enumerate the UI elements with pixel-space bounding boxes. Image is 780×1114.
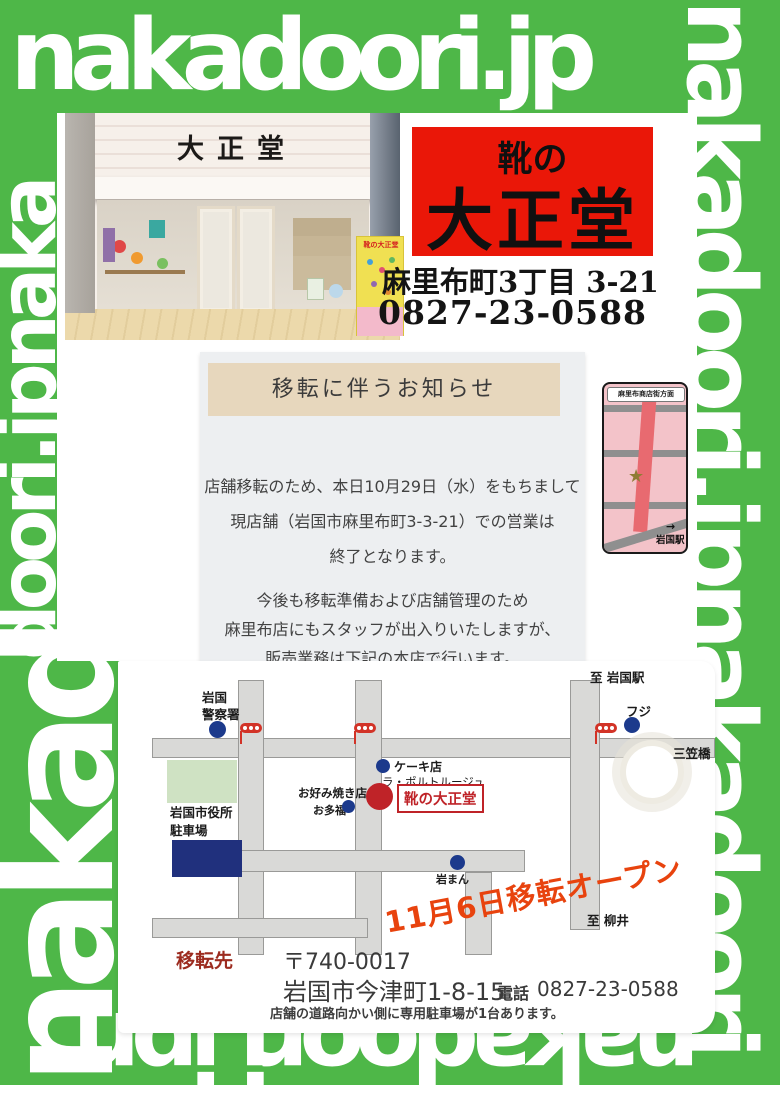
relocation-address: 岩国市今津町1-8-15 <box>283 972 505 1007</box>
fuji-dot <box>624 717 640 733</box>
notice-line: 麻里布店にもスタッフが出入りいたしますが、 <box>200 615 585 644</box>
notice-paragraph-2: 今後も移転準備および店舗管理のため 麻里布店にもスタッフが出入りいたしますが、 … <box>200 586 585 673</box>
map-label-mikasa-bridge: 三笠橋 <box>673 743 711 762</box>
mini-map: 麻里布商店街方面 ★ → 岩国駅 <box>602 382 688 554</box>
sign-store-name: 大正堂 <box>409 167 656 264</box>
map-building-block <box>172 840 242 877</box>
map-label-otafuku: お多福 <box>313 802 346 818</box>
police-dot <box>209 721 226 738</box>
shoe-store-label-box: 靴の大正堂 <box>397 784 484 813</box>
store-phone: 0827-23-0588 <box>378 293 647 332</box>
iwaman-dot <box>450 855 465 870</box>
traffic-light-icon <box>595 723 617 733</box>
relocation-parking-note: 店舗の道路向かい側に専用駐車場が1台あります。 <box>270 1003 564 1022</box>
store-location-star-icon: ★ <box>628 466 644 487</box>
relocation-phone-label: 電話 <box>497 980 529 1004</box>
relocation-label: 移転先 <box>176 946 233 973</box>
map-label-police: 岩国 警察署 <box>202 689 240 723</box>
standing-sign-title: 靴の大正堂 <box>360 240 402 250</box>
bottom-margin-strip <box>0 1085 780 1114</box>
notice-paragraph-1: 店舗移転のため、本日10月29日（水）をもちまして 現店舗（岩国市麻里布町3-3… <box>200 469 585 574</box>
entrance-door-right <box>237 206 275 314</box>
traffic-light-icon <box>354 723 376 733</box>
notice-line: 店舗移転のため、本日10月29日（水）をもちまして <box>200 469 585 504</box>
map-label-to-yanai: 至 柳井 <box>587 910 629 929</box>
tiled-pavement <box>65 309 400 340</box>
map-label-cake-shop: ケーキ店 <box>394 758 442 775</box>
map-road-horizontal-c <box>152 918 368 938</box>
otafuku-dot <box>342 800 355 813</box>
shop-awning <box>93 177 373 199</box>
storefront-photo: 大正堂 <box>65 113 400 340</box>
flyer-page: nakadoori.jp nakadoori.jpnakadoori doori… <box>0 0 780 1114</box>
relocation-notice-paper: 移転に伴うお知らせ 店舗移転のため、本日10月29日（水）をもちまして 現店舗（… <box>200 352 585 664</box>
shop-interior <box>97 200 369 316</box>
notice-title-banner: 移転に伴うお知らせ <box>208 363 560 416</box>
map-road-horizontal-b <box>240 850 525 872</box>
notice-line: 今後も移転準備および店舗管理のため <box>200 586 585 615</box>
mini-map-heading: 麻里布商店街方面 <box>607 387 685 402</box>
relocation-phone: 0827-23-0588 <box>537 977 679 1001</box>
map-label-okonomiyaki: お好み焼き店 <box>298 785 367 801</box>
mini-map-station-label: 岩国駅 <box>656 532 685 546</box>
display-shelf <box>105 270 185 274</box>
display-item-blue <box>329 284 343 298</box>
door-glass <box>203 212 229 308</box>
map-road-vertical-2 <box>355 680 382 955</box>
city-hall-parking-area <box>167 760 237 803</box>
display-item-white-bag <box>307 278 324 300</box>
traffic-light-icon <box>240 723 262 733</box>
sign-deco-dot <box>367 259 373 265</box>
notice-line: 終了となります。 <box>200 539 585 574</box>
display-item-orange <box>131 252 143 264</box>
display-item-teal-bag <box>149 220 165 238</box>
map-label-cityhall-parking: 岩国市役所 駐車場 <box>170 804 233 840</box>
sign-deco-dot <box>371 281 377 287</box>
mini-map-main-road <box>633 392 657 533</box>
map-label-to-station: 至 岩国駅 <box>590 667 644 686</box>
brand-wordmark-left-vertical-upper: doori.jpnaka <box>0 60 58 660</box>
display-item-purple <box>103 228 115 262</box>
facade-sign-text: 大正堂 <box>157 127 317 166</box>
left-pillar <box>65 113 95 313</box>
map-road-vertical-1 <box>238 680 264 955</box>
entrance-door-left <box>197 206 235 314</box>
door-glass <box>243 212 269 308</box>
display-item-green <box>157 258 168 269</box>
cake-shop-dot <box>376 759 390 773</box>
brand-wordmark-top: nakadoori.jp <box>10 0 690 115</box>
shoe-store-dot <box>366 783 393 810</box>
notice-line: 現店舗（岩国市麻里布町3-3-21）での営業は <box>200 504 585 539</box>
